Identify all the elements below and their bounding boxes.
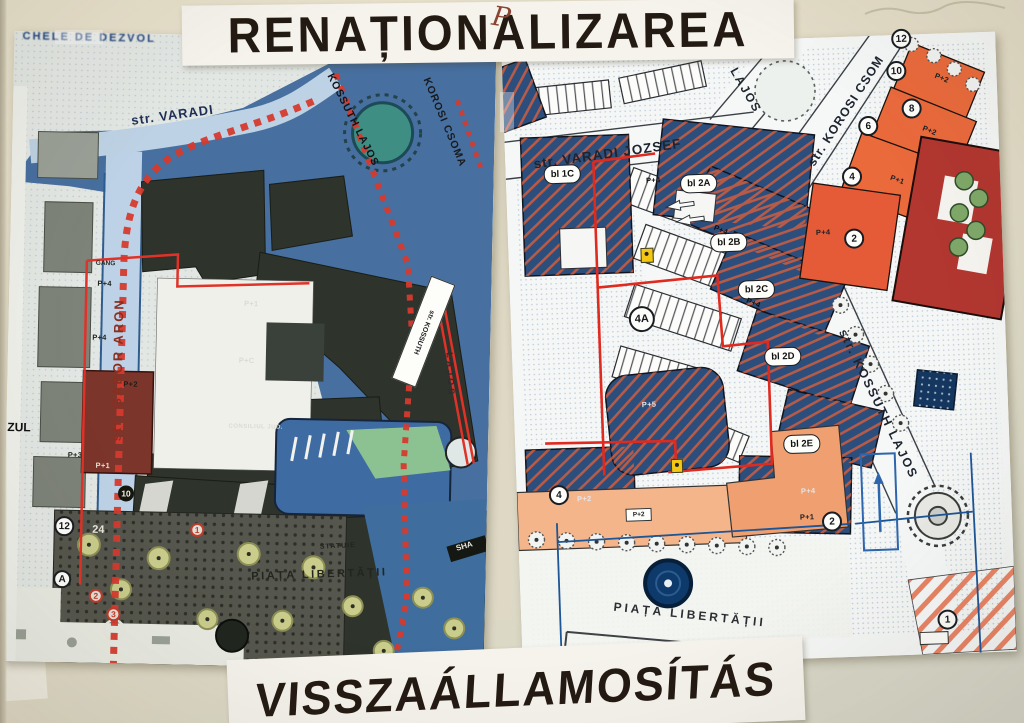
- label-zul: ZUL: [7, 421, 31, 433]
- right-map-photo: str. VARADI JOZSEF LAJOS str. KOROSI CSO…: [501, 32, 1016, 669]
- headline-bottom-text: VISSZAÁLLAMOSÍTÁS: [254, 651, 778, 723]
- floor-label: P+1: [244, 299, 259, 308]
- floor-label: P+4: [97, 279, 112, 288]
- yellow-marker: [671, 459, 683, 473]
- tape-piece: [500, 92, 514, 132]
- pencil-scribble: [860, 0, 1020, 24]
- block-label-2b: bl 2B: [710, 232, 748, 252]
- floor-label: P+4: [646, 175, 661, 184]
- label-gang: GANG: [96, 261, 116, 268]
- floor-label: P+1: [95, 461, 110, 470]
- block-label-2d: bl 2D: [764, 347, 802, 367]
- park-square: [914, 370, 958, 410]
- floor-label: P+5: [642, 400, 657, 409]
- left-map-photo: CHELE DE DEZVOL str. VARADI str. GABOR A…: [1, 31, 496, 671]
- street-label-lajos-vertical: LAJOS: [444, 352, 455, 397]
- headline-renationalizarea: RENAȚIONALIZAREA: [182, 0, 795, 66]
- headline-top-text: RENAȚIONALIZAREA: [227, 0, 748, 64]
- block-label-2e: bl 2E: [783, 434, 820, 454]
- fountain: [644, 560, 692, 608]
- floor-label: P+4: [816, 227, 831, 236]
- label-consiliul: CONSILIUL JUD.: [228, 424, 283, 431]
- floor-label: P+4: [92, 333, 107, 342]
- block-label-2c: bl 2C: [738, 279, 776, 299]
- floor-label: P+1: [800, 512, 815, 521]
- floor-label: P+C: [239, 356, 255, 365]
- block-label-1c: bl 1C: [543, 164, 581, 184]
- floor-label: P+3: [68, 450, 83, 459]
- floor-label: P+4: [801, 486, 816, 495]
- label-24: 24: [92, 525, 104, 536]
- statue-base: [216, 619, 249, 652]
- floor-label-box: P+2: [625, 508, 651, 522]
- floor-label: P+2: [123, 379, 138, 388]
- block-label-2a: bl 2A: [680, 173, 718, 193]
- photo-of-map-posters: P: [0, 0, 1024, 723]
- right-map-artwork: [501, 32, 1016, 669]
- floor-label: P+2: [577, 494, 592, 503]
- tape-piece: [55, 30, 103, 44]
- yellow-marker: [640, 248, 654, 263]
